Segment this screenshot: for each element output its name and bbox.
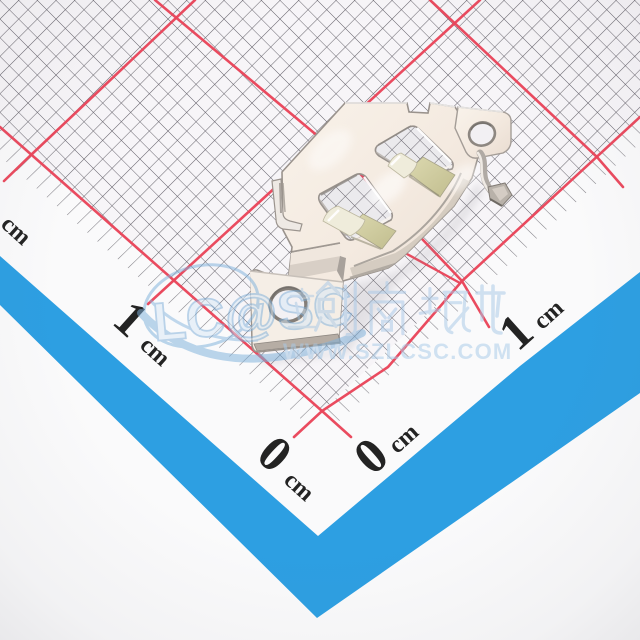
svg-text:WWW.SZLCSC.COM: WWW.SZLCSC.COM <box>283 339 512 364</box>
